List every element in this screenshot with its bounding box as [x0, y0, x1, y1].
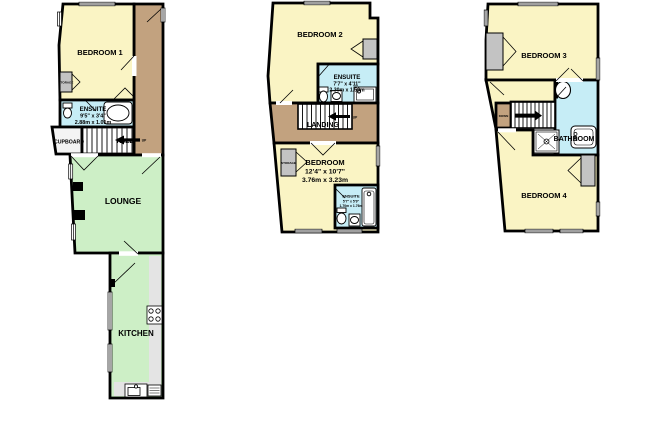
- bedroom-dims-metric: 3.76m x 3.23m: [302, 177, 348, 184]
- second-floor-plan: BEDROOM 3 DOWN BATHROOM BEDROOM 4: [478, 0, 618, 245]
- bath-icon: [362, 188, 376, 226]
- hall-label: HALL: [117, 138, 134, 145]
- ensuite-2-dims-metric: 1.70m x 1.76m: [340, 204, 363, 208]
- bedroom-3-label: BEDROOM 3: [521, 51, 566, 60]
- floorplan-canvas: BEDROOM 1 STORAGE ENSUITE 9'5" x 3'4" 2.…: [0, 0, 645, 430]
- hall-area: [134, 4, 163, 155]
- down-label: DOWN: [499, 114, 509, 118]
- first-floor-plan: BEDROOM 2 ENSUITE 7'7" x 4'11" 2.30m x 1…: [250, 0, 395, 245]
- lounge-label: LOUNGE: [105, 196, 142, 206]
- ensuite-dims-metric: 2.88m x 1.01m: [75, 120, 112, 126]
- basin-2-icon: [349, 214, 360, 226]
- sink-icon: [125, 384, 161, 397]
- bedroom-4-label: BEDROOM 4: [521, 191, 567, 200]
- basin-icon: [555, 81, 571, 99]
- bedroom-1-label: BEDROOM 1: [77, 48, 122, 57]
- landing-label: LANDING: [307, 122, 339, 129]
- ensuite-dims-metric: 2.30m x 1.50m: [329, 88, 365, 94]
- ensuite-dims-imperial: 9'5" x 3'4": [80, 114, 106, 120]
- bathroom-label: BATHROOM: [554, 136, 595, 143]
- ensuite-2-dims-imperial: 5'7" x 5'9": [343, 200, 360, 204]
- storage-label: STORAGE: [281, 161, 296, 165]
- storage-label: STORAGE: [59, 81, 74, 85]
- toilet-icon: [63, 103, 72, 118]
- kitchen-label: KITCHEN: [118, 329, 154, 338]
- bedroom-label: BEDROOM: [305, 158, 344, 167]
- hob-icon: [147, 306, 162, 324]
- ground-floor-plan: BEDROOM 1 STORAGE ENSUITE 9'5" x 3'4" 2.…: [30, 0, 190, 430]
- bedroom-dims-imperial: 12'4" x 10'7": [305, 169, 345, 176]
- ensuite-2-label: ENSUITE: [342, 194, 360, 199]
- bedroom-2-label: BEDROOM 2: [297, 30, 342, 39]
- toilet-icon: [319, 87, 328, 102]
- cupboard-label: CUPBOARD: [54, 140, 84, 146]
- toilet-2-icon: [337, 208, 346, 224]
- ensuite-label: ENSUITE: [334, 74, 361, 81]
- ensuite-label: ENSUITE: [80, 106, 107, 113]
